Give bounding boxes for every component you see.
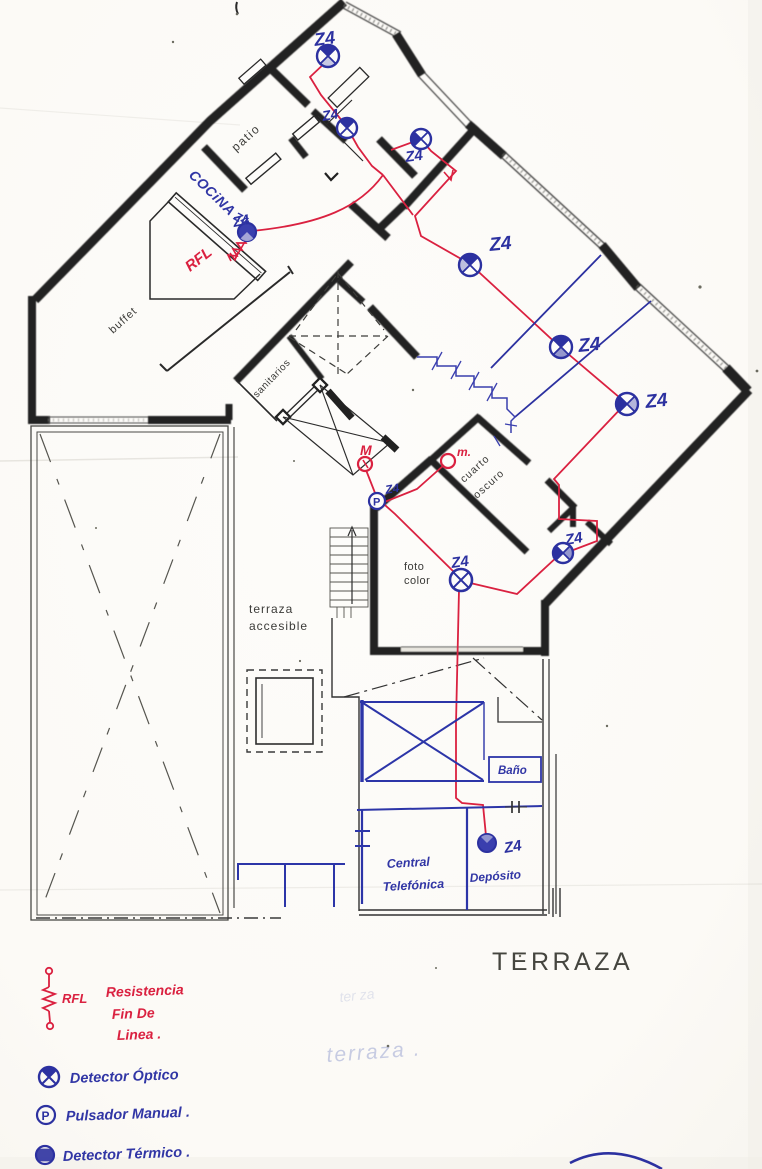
svg-text:Z4: Z4 bbox=[643, 390, 669, 413]
svg-text:Baño: Baño bbox=[498, 765, 527, 777]
svg-text:M: M bbox=[360, 442, 372, 458]
svg-text:TERRAZA: TERRAZA bbox=[492, 948, 633, 976]
svg-text:P: P bbox=[42, 1109, 50, 1123]
svg-text:accesible: accesible bbox=[249, 619, 308, 633]
svg-text:Z4: Z4 bbox=[487, 233, 513, 256]
svg-text:RFL: RFL bbox=[62, 991, 87, 1006]
svg-text:Linea .: Linea . bbox=[117, 1025, 162, 1043]
svg-text:foto: foto bbox=[404, 561, 424, 573]
svg-text:m.: m. bbox=[457, 445, 471, 459]
svg-text:Z4: Z4 bbox=[502, 837, 524, 857]
svg-text:Z4: Z4 bbox=[403, 147, 424, 167]
svg-text:Resistencia: Resistencia bbox=[106, 981, 185, 1000]
svg-text:Z4: Z4 bbox=[576, 334, 602, 357]
svg-text:Z4: Z4 bbox=[312, 27, 337, 50]
svg-text:Central: Central bbox=[386, 855, 430, 871]
svg-text:Z4: Z4 bbox=[383, 481, 401, 497]
svg-text:terraza: terraza bbox=[249, 602, 293, 616]
svg-text:Z4: Z4 bbox=[563, 529, 585, 549]
svg-text:P: P bbox=[373, 497, 380, 509]
svg-text:Fin De: Fin De bbox=[112, 1005, 156, 1022]
svg-text:color: color bbox=[404, 575, 430, 587]
svg-text:Z4: Z4 bbox=[320, 105, 340, 124]
svg-text:Z4: Z4 bbox=[449, 553, 470, 573]
